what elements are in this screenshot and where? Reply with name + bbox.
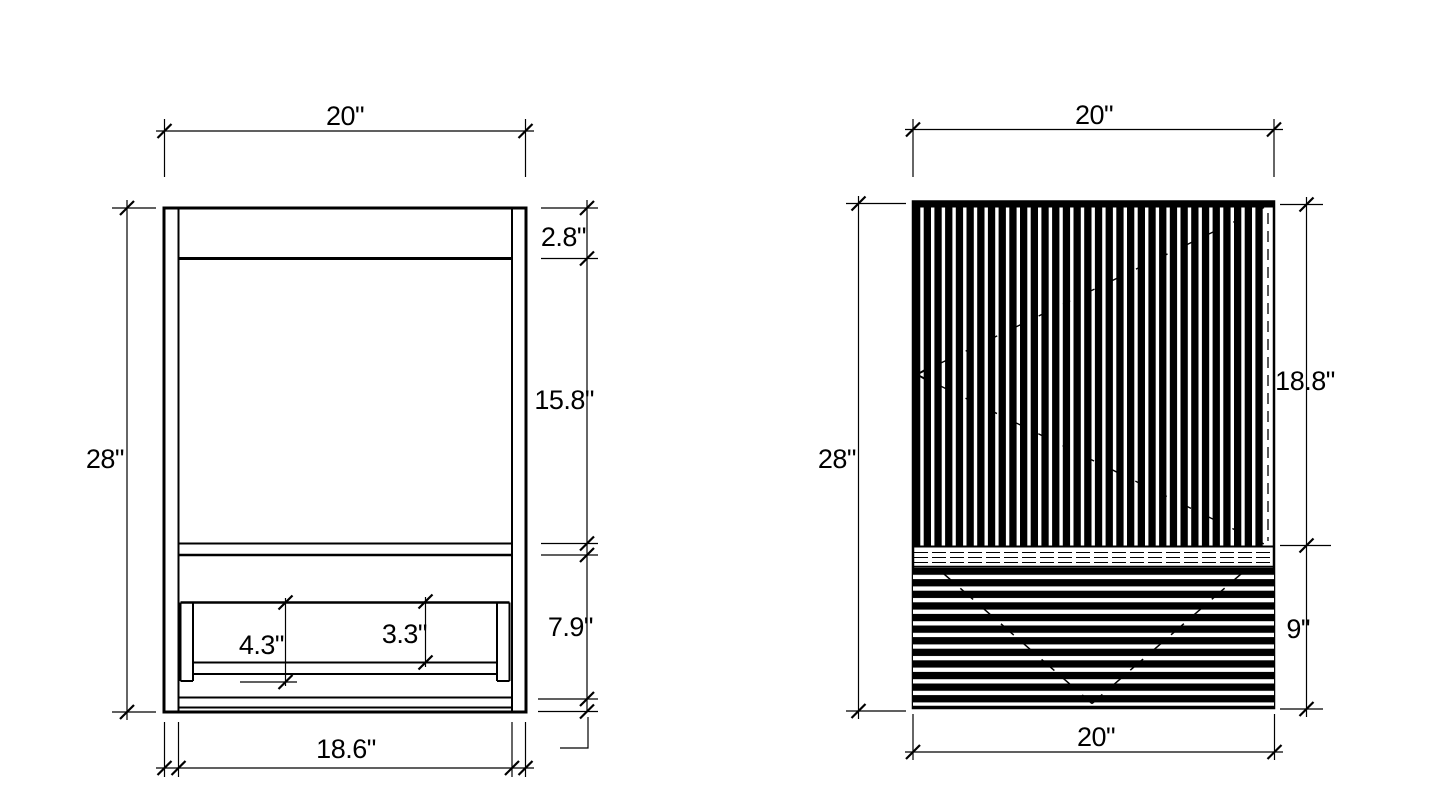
- shelf-assembly: [181, 603, 510, 682]
- horizontal-slat-hatching: [913, 568, 1274, 708]
- drawing-svg: 20" 28" 2.8" 15.8" 7.9" 4.3": [0, 0, 1429, 793]
- dim-label-front-overall-height: 28": [86, 444, 124, 474]
- dim-label-side-lower-section: 9": [1286, 614, 1310, 644]
- technical-drawing-page: 20" 28" 2.8" 15.8" 7.9" 4.3": [0, 0, 1429, 793]
- dim-label-side-base-width: 20": [1077, 722, 1115, 752]
- dim-label-side-overall-width: 20": [1075, 100, 1113, 130]
- side-view: [913, 202, 1274, 709]
- dim-label-side-overall-height: 28": [818, 444, 856, 474]
- dim-label-front-opening: 15.8": [534, 385, 594, 415]
- dim-label-front-overall-width: 20": [326, 101, 364, 131]
- dim-label-front-top-rail: 2.8": [541, 222, 586, 252]
- dim-label-front-interior-width: 18.6": [316, 734, 376, 764]
- panel-top-edge-band: [913, 202, 1274, 208]
- dim-label-front-base-section: 7.9": [548, 612, 593, 642]
- dim-label-side-upper-section: 18.8": [1275, 366, 1335, 396]
- vertical-slat-hatching: [913, 207, 1263, 547]
- divider-dashed-band: [913, 553, 1274, 567]
- base-thickness-leader: [560, 717, 588, 748]
- dim-label-shelf-support: 4.3": [239, 630, 284, 660]
- cabinet-outline: [164, 208, 526, 712]
- dim-label-shelf-clearance: 3.3": [382, 619, 427, 649]
- front-view: [164, 208, 526, 712]
